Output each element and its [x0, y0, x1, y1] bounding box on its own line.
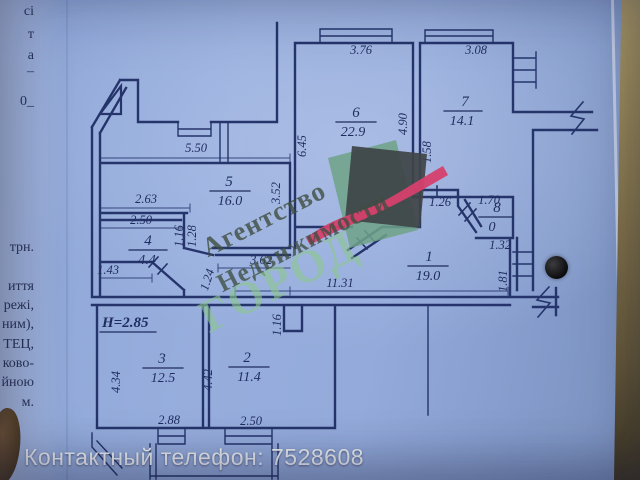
room-area: 19.0 [416, 269, 441, 284]
dim-label: 4.90 [396, 112, 410, 135]
room-area: 0 [489, 220, 496, 235]
contact-phone-caption: Контактный телефон: 7528608 [24, 444, 364, 471]
dim-label: 1.32 [489, 238, 511, 252]
room-number: 2 [243, 350, 251, 366]
dim-label: 1.16 [270, 313, 284, 336]
dim-label: 1.81 [496, 270, 510, 292]
room-number: 8 [493, 200, 501, 216]
ceiling-height-note: Н=2.85 [101, 315, 149, 331]
dim-label: 5.50 [185, 141, 208, 155]
room-area: 12.5 [151, 371, 176, 386]
floorplan-photo: сі т а – 0_ трн. иття режі, ним), ТЕЦ, к… [0, 0, 640, 480]
room-area: 22.9 [341, 125, 366, 140]
room-number: 7 [461, 94, 470, 110]
dim-label: 1.16 [172, 224, 186, 247]
dim-label: 2.63 [135, 192, 157, 206]
room-number: 3 [157, 351, 166, 367]
break-symbol [537, 102, 584, 317]
room-number: 4 [144, 233, 152, 249]
dim-label: 3.08 [464, 43, 488, 57]
dim-label: 4.42 [201, 369, 215, 391]
hole-punch [545, 256, 568, 279]
dim-label: 1.43 [97, 263, 119, 277]
dim-label: 2.88 [158, 413, 181, 427]
room-area: 16.0 [218, 194, 243, 209]
room-area: 11.4 [237, 370, 260, 385]
dim-label: 2.50 [240, 414, 263, 428]
dim-label: 1.26 [429, 195, 452, 209]
room-area: 4.4 [138, 253, 156, 268]
dim-label: 6.45 [295, 135, 309, 157]
dim-label: 4.34 [109, 371, 123, 393]
dim-label: 3.76 [349, 43, 373, 57]
dim-label: 2.50 [130, 213, 153, 227]
room-area: 14.1 [450, 114, 475, 129]
room-number: 5 [225, 174, 233, 190]
room-number: 1 [425, 249, 433, 265]
room-number: 6 [352, 105, 360, 121]
